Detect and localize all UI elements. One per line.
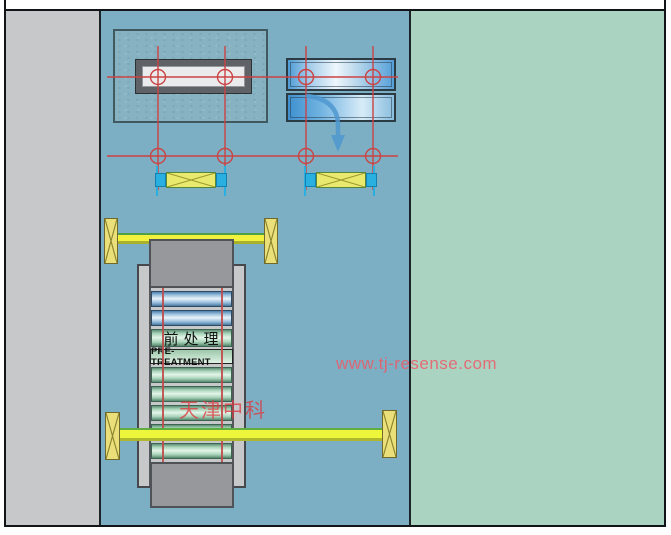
- transfer-rail-lower: [112, 428, 383, 441]
- machine-end-block-top: [149, 239, 234, 288]
- rail-trolley-lower-left: [105, 412, 120, 460]
- tank-upper: [286, 58, 396, 91]
- clamp-frame: [135, 59, 252, 94]
- tank-upper-inner-line: [290, 62, 392, 87]
- clamp-frame-opening: [142, 66, 245, 87]
- machine-end-block-bottom: [150, 462, 234, 508]
- tank-lower-inner-line: [290, 97, 392, 118]
- guide-tab: [155, 173, 166, 187]
- guide-tab: [366, 173, 377, 187]
- rail-trolley-upper-right: [264, 218, 278, 264]
- slide-block-left: [166, 172, 216, 188]
- slide-block-right: [316, 172, 366, 188]
- watermark-company: 天津中科: [179, 394, 267, 423]
- rail-trolley-upper-left: [104, 218, 118, 264]
- viewport-border-left: [4, 0, 6, 527]
- watermark-website: www.tj-resense.com: [336, 354, 497, 374]
- left-margin-panel: [6, 11, 99, 525]
- cad-drawing-viewport: 前处理 PRE-TREATMENT www.tj-resense.com 天津中…: [0, 0, 671, 535]
- guide-tab: [216, 173, 227, 187]
- tank-lower: [286, 93, 396, 122]
- viewport-border-right: [664, 0, 666, 527]
- floor-area-panel: [411, 11, 664, 525]
- guide-tab: [305, 173, 316, 187]
- rail-trolley-lower-right: [382, 410, 397, 458]
- viewport-border-top: [4, 9, 666, 11]
- viewport-border-bottom: [4, 525, 666, 527]
- panel-divider-left: [99, 11, 101, 525]
- panel-divider-right: [409, 11, 411, 525]
